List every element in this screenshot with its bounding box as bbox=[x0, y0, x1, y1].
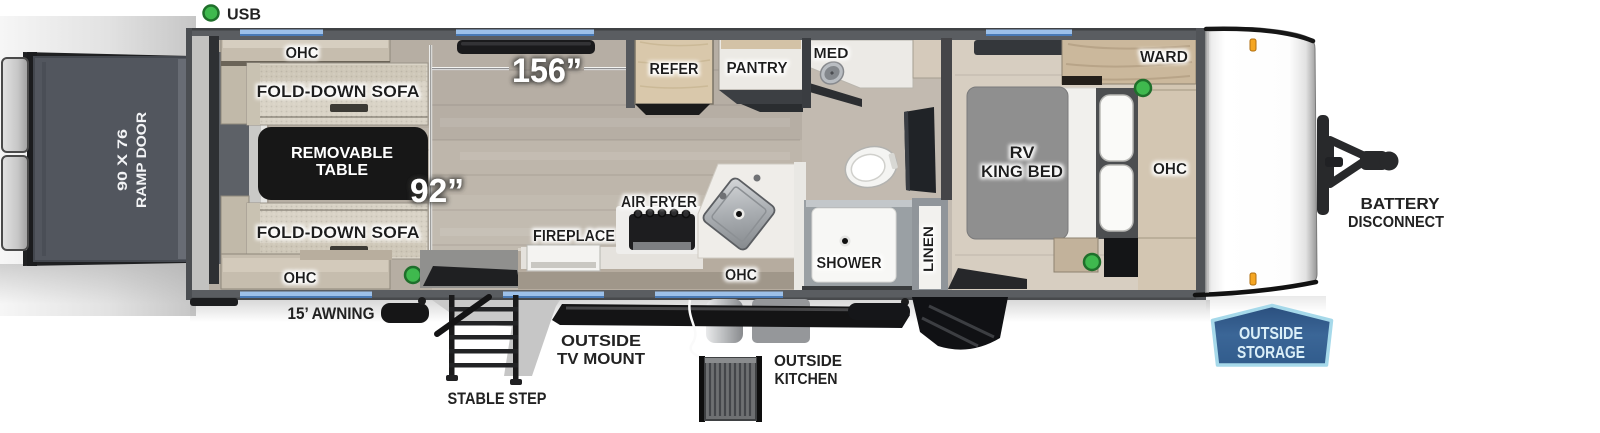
svg-text:PANTRY: PANTRY bbox=[727, 60, 788, 77]
svg-text:RAMP DOOR: RAMP DOOR bbox=[133, 112, 149, 208]
svg-text:TV MOUNT: TV MOUNT bbox=[557, 351, 645, 368]
svg-text:15’ AWNING: 15’ AWNING bbox=[288, 305, 375, 323]
svg-text:STORAGE: STORAGE bbox=[1237, 342, 1305, 362]
svg-text:AIR FRYER: AIR FRYER bbox=[621, 194, 697, 211]
svg-text:REMOVABLE: REMOVABLE bbox=[291, 145, 393, 162]
svg-text:OUTSIDE: OUTSIDE bbox=[1239, 323, 1303, 343]
svg-text:WARD: WARD bbox=[1140, 49, 1188, 66]
svg-text:OHC: OHC bbox=[286, 45, 319, 62]
svg-text:OHC: OHC bbox=[284, 270, 317, 287]
svg-text:92”: 92” bbox=[410, 172, 464, 209]
svg-text:KING BED: KING BED bbox=[981, 163, 1063, 181]
svg-text:156”: 156” bbox=[512, 52, 582, 90]
svg-text:90 X 76: 90 X 76 bbox=[114, 129, 130, 191]
svg-text:SHOWER: SHOWER bbox=[817, 255, 882, 272]
svg-text:USB: USB bbox=[227, 7, 261, 24]
svg-text:OHC: OHC bbox=[1153, 161, 1187, 178]
svg-text:BATTERY: BATTERY bbox=[1361, 196, 1441, 213]
svg-text:FIREPLACE: FIREPLACE bbox=[533, 228, 615, 245]
svg-text:FOLD-DOWN SOFA: FOLD-DOWN SOFA bbox=[257, 224, 420, 242]
svg-text:KITCHEN: KITCHEN bbox=[775, 371, 838, 388]
svg-text:LINEN: LINEN bbox=[920, 226, 936, 272]
svg-text:RV: RV bbox=[1010, 144, 1035, 162]
svg-text:STABLE STEP: STABLE STEP bbox=[448, 390, 547, 408]
svg-text:OUTSIDE: OUTSIDE bbox=[561, 333, 641, 350]
svg-text:FOLD-DOWN SOFA: FOLD-DOWN SOFA bbox=[257, 83, 420, 101]
svg-text:TABLE: TABLE bbox=[316, 162, 368, 179]
svg-text:OUTSIDE: OUTSIDE bbox=[774, 353, 842, 370]
svg-text:MED: MED bbox=[814, 45, 849, 62]
svg-text:REFER: REFER bbox=[650, 61, 699, 78]
svg-text:OHC: OHC bbox=[725, 267, 757, 284]
svg-text:DISCONNECT: DISCONNECT bbox=[1348, 214, 1444, 231]
